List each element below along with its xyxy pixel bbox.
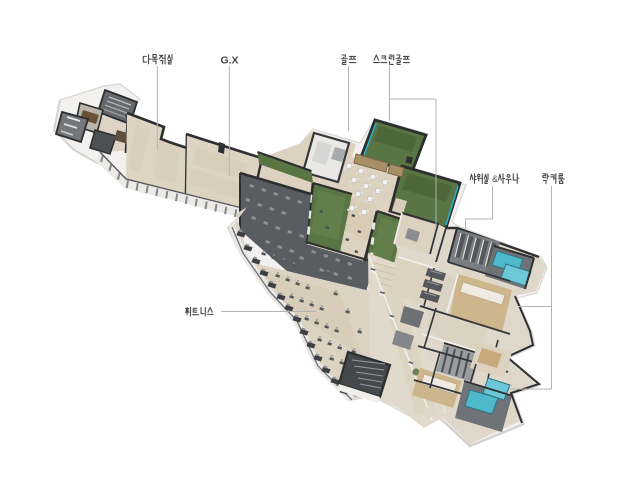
svg-text:G.X: G.X [220, 55, 238, 67]
svg-text:&: & [492, 174, 498, 184]
